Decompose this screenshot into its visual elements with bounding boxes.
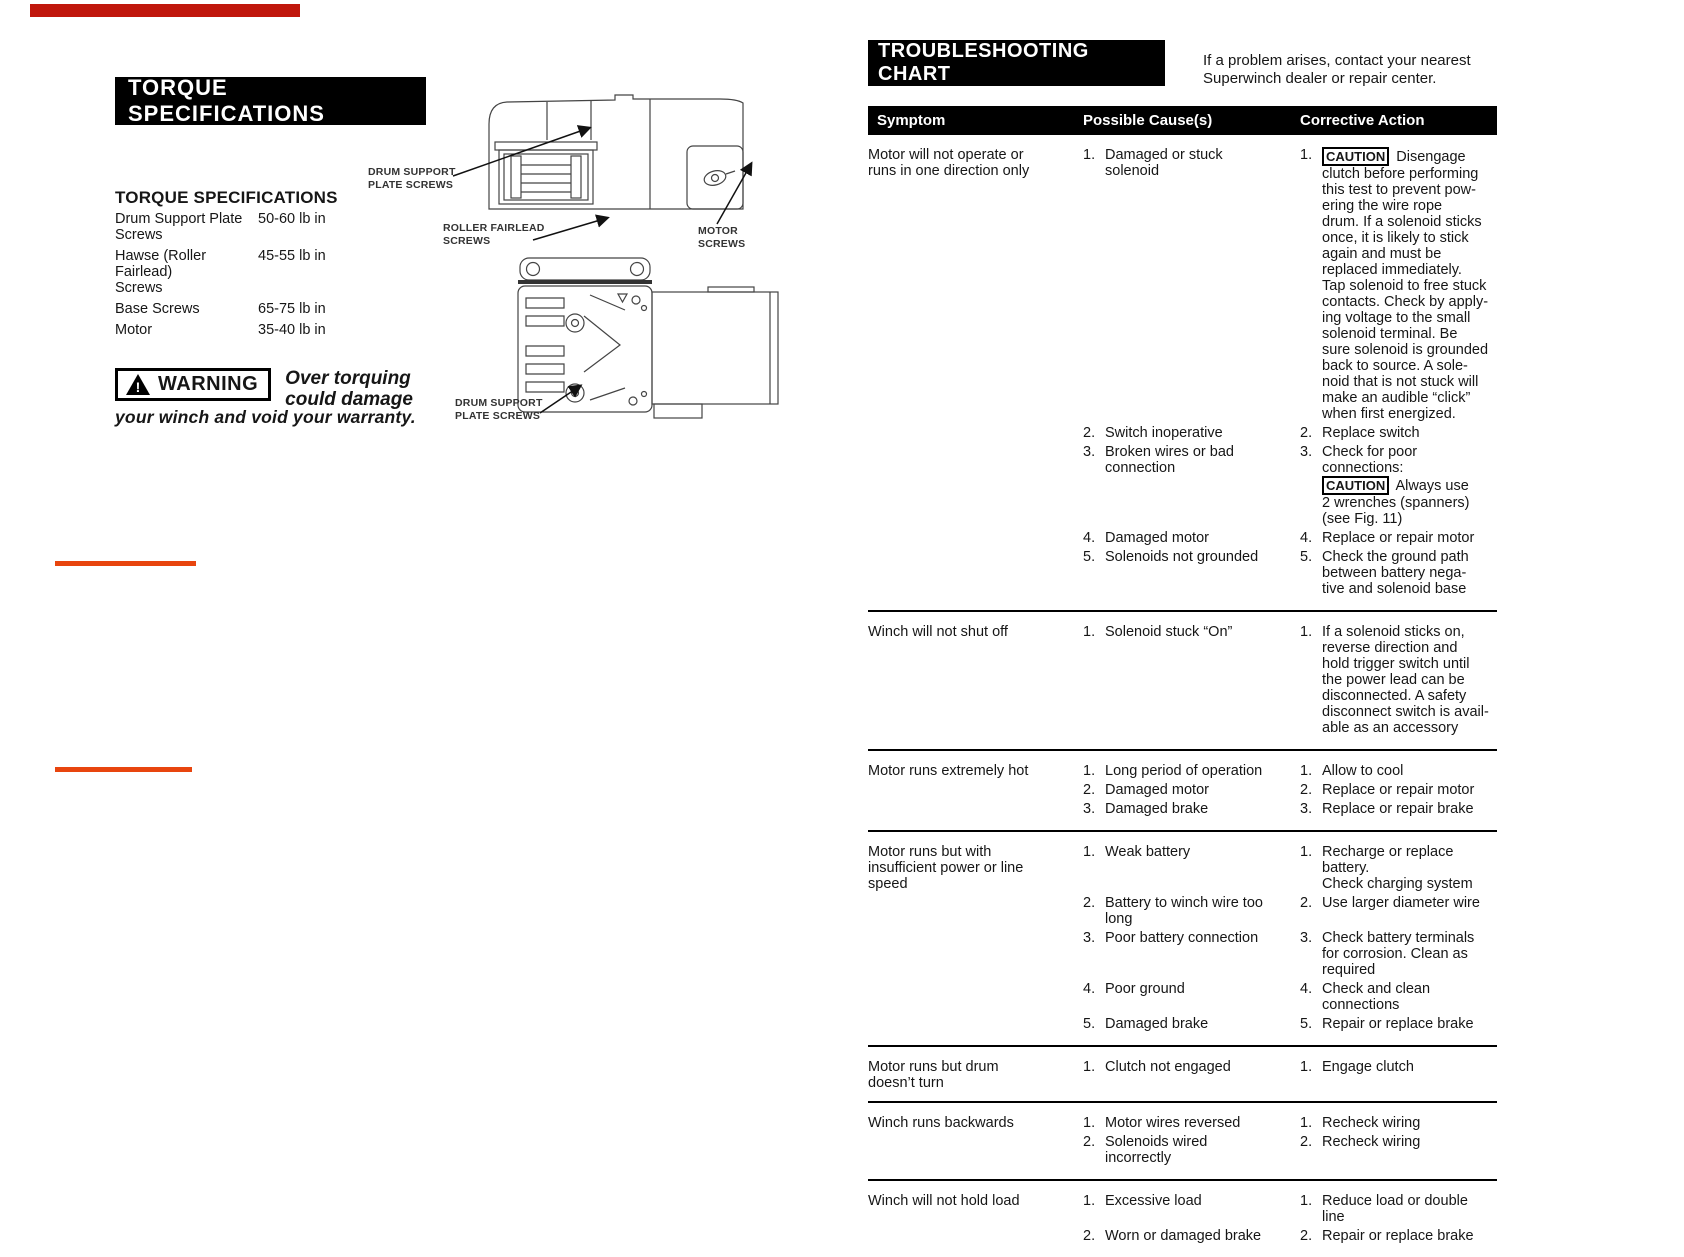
table-row: Motor runs but drum doesn’t turn1.Clutch… <box>868 1047 1497 1103</box>
warning-block: ! WARNING Over torquing could damage <box>115 368 413 410</box>
item-text: Check and clean connections <box>1322 981 1430 1013</box>
cause-action-pair: 2.Solenoids wired incorrectly2.Recheck w… <box>1083 1134 1497 1166</box>
action-item: 2.Replace switch <box>1300 425 1497 441</box>
roller-fairlead-screws-label: ROLLER FAIRLEAD SCREWS <box>443 222 545 247</box>
item-number: 4. <box>1300 530 1322 546</box>
item-text: Broken wires or bad connection <box>1105 444 1234 476</box>
spec-item-value: 35-40 lb in <box>258 322 330 338</box>
item-number: 2. <box>1300 895 1322 911</box>
item-number: 3. <box>1083 444 1105 460</box>
spec-item-label: Drum Support Plate Screws <box>115 211 258 243</box>
drum-support-plate-screws-label-top: DRUM SUPPORT PLATE SCREWS <box>368 166 456 191</box>
table-header-row: SymptomPossible Cause(s)Corrective Actio… <box>868 106 1497 135</box>
symptom-cell: Winch will not shut off <box>868 624 1083 739</box>
item-text: Check for poor connections: CAUTION Alwa… <box>1322 444 1497 527</box>
item-number: 1. <box>1083 624 1105 640</box>
cause-item: 1.Clutch not engaged <box>1083 1059 1300 1075</box>
item-text: Clutch not engaged <box>1105 1059 1231 1075</box>
item-number: 2. <box>1083 425 1105 441</box>
item-text: Reduce load or double line <box>1322 1193 1468 1225</box>
cause-item: 2.Switch inoperative <box>1083 425 1300 441</box>
spec-item-value: 65-75 lb in <box>258 301 330 317</box>
item-number: 2. <box>1300 782 1322 798</box>
table-row: Motor will not operate or runs in one di… <box>868 135 1497 612</box>
red-rule-1 <box>55 561 196 566</box>
cause-item: 5.Solenoids not grounded <box>1083 549 1300 597</box>
cause-item: 1.Excessive load <box>1083 1193 1300 1225</box>
item-number: 1. <box>1300 1193 1322 1209</box>
item-number: 1. <box>1300 1059 1322 1075</box>
item-text: Engage clutch <box>1322 1059 1414 1075</box>
item-text: Check the ground path between battery ne… <box>1322 549 1469 597</box>
svg-text:!: ! <box>136 379 141 395</box>
item-text: Check battery terminals for corrosion. C… <box>1322 930 1474 978</box>
item-text: Replace or repair motor <box>1322 782 1474 798</box>
item-text: Use larger diameter wire <box>1322 895 1480 911</box>
column-header: Possible Cause(s) <box>1083 113 1300 129</box>
cause-action-pair: 2.Switch inoperative2.Replace switch <box>1083 425 1497 441</box>
item-number: 1. <box>1300 1115 1322 1131</box>
item-number: 1. <box>1300 624 1322 640</box>
cause-action-list: 1.Weak battery1.Recharge or replace batt… <box>1083 844 1497 1035</box>
red-top-bar <box>30 4 300 17</box>
cause-action-pair: 3.Broken wires or bad connection3.Check … <box>1083 444 1497 527</box>
column-header: Corrective Action <box>1300 113 1497 129</box>
cause-action-list: 1.Damaged or stuck solenoid1.CAUTION Dis… <box>1083 147 1497 600</box>
item-text: Battery to winch wire too long <box>1105 895 1263 927</box>
item-number: 5. <box>1083 549 1105 565</box>
symptom-cell: Motor will not operate or runs in one di… <box>868 147 1083 600</box>
spec-row: Hawse (Roller Fairlead) Screws45-55 lb i… <box>115 248 330 296</box>
action-item: 2.Repair or replace brake <box>1300 1228 1497 1244</box>
item-number: 1. <box>1300 844 1322 860</box>
item-text: Excessive load <box>1105 1193 1202 1209</box>
item-number: 1. <box>1083 147 1105 163</box>
cause-action-list: 1.Clutch not engaged1.Engage clutch <box>1083 1059 1497 1091</box>
warning-box: ! WARNING <box>115 368 271 401</box>
cause-action-pair: 1.Solenoid stuck “On”1.If a solenoid sti… <box>1083 624 1497 736</box>
item-number: 1. <box>1300 763 1322 779</box>
action-item: 4.Check and clean connections <box>1300 981 1497 1013</box>
cause-item: 2.Damaged motor <box>1083 782 1300 798</box>
cause-item: 1.Weak battery <box>1083 844 1300 892</box>
item-number: 3. <box>1083 801 1105 817</box>
item-text: Repair or replace brake <box>1322 1016 1474 1032</box>
item-number: 5. <box>1300 1016 1322 1032</box>
action-item: 3.Replace or repair brake <box>1300 801 1497 817</box>
item-number: 1. <box>1083 763 1105 779</box>
item-number: 4. <box>1300 981 1322 997</box>
action-item: 5.Check the ground path between battery … <box>1300 549 1497 597</box>
item-text: Solenoid stuck “On” <box>1105 624 1232 640</box>
spec-item-label: Hawse (Roller Fairlead) Screws <box>115 248 258 296</box>
action-item: 1.If a solenoid sticks on, reverse direc… <box>1300 624 1497 736</box>
item-number: 2. <box>1083 1228 1105 1244</box>
symptom-cell: Motor runs but drum doesn’t turn <box>868 1059 1083 1091</box>
item-text: Recheck wiring <box>1322 1134 1420 1150</box>
item-text: Poor ground <box>1105 981 1185 997</box>
action-item: 1.Reduce load or double line <box>1300 1193 1497 1225</box>
cause-item: 5.Damaged brake <box>1083 1016 1300 1032</box>
cause-item: 1.Solenoid stuck “On” <box>1083 624 1300 736</box>
cause-action-list: 1.Solenoid stuck “On”1.If a solenoid sti… <box>1083 624 1497 739</box>
item-text: Damaged brake <box>1105 1016 1208 1032</box>
drum-support-plate-screws-label-bottom: DRUM SUPPORT PLATE SCREWS <box>455 397 543 422</box>
cause-action-pair: 1.Excessive load1.Reduce load or double … <box>1083 1193 1497 1225</box>
cause-action-pair: 2.Worn or damaged brake2.Repair or repla… <box>1083 1228 1497 1244</box>
cause-item: 3.Damaged brake <box>1083 801 1300 817</box>
item-text: Solenoids wired incorrectly <box>1105 1134 1207 1166</box>
action-item: 2.Use larger diameter wire <box>1300 895 1497 927</box>
item-number: 3. <box>1083 930 1105 946</box>
cause-action-pair: 3.Poor battery connection3.Check battery… <box>1083 930 1497 978</box>
item-text: Recheck wiring <box>1322 1115 1420 1131</box>
troubleshooting-table: SymptomPossible Cause(s)Corrective Actio… <box>868 106 1497 1257</box>
item-text: Damaged motor <box>1105 782 1209 798</box>
cause-item: 1.Long period of operation <box>1083 763 1300 779</box>
item-number: 2. <box>1300 1228 1322 1244</box>
warning-triangle-icon: ! <box>125 373 151 396</box>
item-number: 3. <box>1300 801 1322 817</box>
item-text: Solenoids not grounded <box>1105 549 1258 565</box>
action-item: 2.Replace or repair motor <box>1300 782 1497 798</box>
cause-item: 1.Damaged or stuck solenoid <box>1083 147 1300 422</box>
item-number: 3. <box>1300 930 1322 946</box>
caution-badge: CAUTION <box>1322 476 1389 495</box>
cause-action-pair: 4.Poor ground4.Check and clean connectio… <box>1083 981 1497 1013</box>
spec-item-label: Motor <box>115 322 258 338</box>
cause-item: 2.Battery to winch wire too long <box>1083 895 1300 927</box>
item-text: Long period of operation <box>1105 763 1262 779</box>
item-number: 1. <box>1083 1115 1105 1131</box>
item-number: 4. <box>1083 530 1105 546</box>
cause-action-pair: 3.Damaged brake3.Replace or repair brake <box>1083 801 1497 817</box>
item-number: 1. <box>1300 147 1322 163</box>
cause-action-pair: 1.Weak battery1.Recharge or replace batt… <box>1083 844 1497 892</box>
symptom-cell: Winch runs backwards <box>868 1115 1083 1169</box>
cause-action-pair: 2.Damaged motor2.Replace or repair motor <box>1083 782 1497 798</box>
item-number: 1. <box>1083 1059 1105 1075</box>
item-number: 3. <box>1300 444 1322 460</box>
item-text: Replace switch <box>1322 425 1420 441</box>
action-item: 1.Recheck wiring <box>1300 1115 1497 1131</box>
cause-item: 3.Poor battery connection <box>1083 930 1300 978</box>
item-number: 1. <box>1083 844 1105 860</box>
winch-end-view-diagram: DRUM SUPPORT PLATE SCREWS <box>440 250 785 440</box>
item-text: Motor wires reversed <box>1105 1115 1240 1131</box>
cause-action-pair: 1.Damaged or stuck solenoid1.CAUTION Dis… <box>1083 147 1497 422</box>
cause-item: 3.Broken wires or bad connection <box>1083 444 1300 527</box>
dealer-note: If a problem arises, contact your neares… <box>1203 52 1503 87</box>
item-number: 5. <box>1083 1016 1105 1032</box>
table-row: Winch will not hold load1.Excessive load… <box>868 1181 1497 1257</box>
item-text: Recharge or replace battery. Check charg… <box>1322 844 1497 892</box>
action-item: 3.Check battery terminals for corrosion.… <box>1300 930 1497 978</box>
cause-item: 4.Damaged motor <box>1083 530 1300 546</box>
item-number: 4. <box>1083 981 1105 997</box>
cause-action-pair: 1.Clutch not engaged1.Engage clutch <box>1083 1059 1497 1075</box>
cause-action-pair: 4.Damaged motor4.Replace or repair motor <box>1083 530 1497 546</box>
motor-screws-label: MOTOR SCREWS <box>698 225 745 250</box>
cause-action-list: 1.Excessive load1.Reduce load or double … <box>1083 1193 1497 1247</box>
column-header: Symptom <box>868 113 1083 129</box>
item-text: Repair or replace brake <box>1322 1228 1474 1244</box>
winch-side-view-diagram: DRUM SUPPORT PLATE SCREWS ROLLER FAIRLEA… <box>365 90 765 265</box>
symptom-cell: Motor runs extremely hot <box>868 763 1083 820</box>
item-number: 1. <box>1083 1193 1105 1209</box>
action-item: 3.Check for poor connections: CAUTION Al… <box>1300 444 1497 527</box>
table-row: Motor runs but with insufficient power o… <box>868 832 1497 1047</box>
action-item: 1.Allow to cool <box>1300 763 1497 779</box>
item-text: Poor battery connection <box>1105 930 1258 946</box>
item-number: 5. <box>1300 549 1322 565</box>
cause-action-pair: 1.Long period of operation1.Allow to coo… <box>1083 763 1497 779</box>
table-row: Winch runs backwards1.Motor wires revers… <box>868 1103 1497 1181</box>
action-item: 2.Recheck wiring <box>1300 1134 1497 1166</box>
item-text: CAUTION Disengage clutch before performi… <box>1322 147 1488 422</box>
cause-item: 2.Worn or damaged brake <box>1083 1228 1300 1244</box>
manual-page: { "decor": { "top_bar_color": "#c0170c",… <box>0 0 1684 1191</box>
symptom-cell: Motor runs but with insufficient power o… <box>868 844 1083 1035</box>
spec-row: Drum Support Plate Screws50-60 lb in <box>115 211 330 243</box>
cause-action-list: 1.Motor wires reversed1.Recheck wiring2.… <box>1083 1115 1497 1169</box>
spec-row: Base Screws65-75 lb in <box>115 301 330 317</box>
warning-tail-text: your winch and void your warranty. <box>115 407 416 428</box>
symptom-cell: Winch will not hold load <box>868 1193 1083 1247</box>
item-number: 2. <box>1300 1134 1322 1150</box>
item-text: Replace or repair brake <box>1322 801 1474 817</box>
torque-spec-list: Drum Support Plate Screws50-60 lb inHaws… <box>115 211 330 343</box>
item-number: 2. <box>1083 895 1105 911</box>
item-text: If a solenoid sticks on, reverse directi… <box>1322 624 1489 736</box>
warning-label: WARNING <box>158 373 258 396</box>
item-text: Switch inoperative <box>1105 425 1223 441</box>
warning-emphasis-text: Over torquing could damage <box>285 368 413 410</box>
item-text: Replace or repair motor <box>1322 530 1474 546</box>
red-rule-2 <box>55 767 192 772</box>
troubleshooting-chart-banner: TROUBLESHOOTING CHART <box>868 40 1165 86</box>
action-item: 1.CAUTION Disengage clutch before perfor… <box>1300 147 1497 422</box>
table-body: Motor will not operate or runs in one di… <box>868 135 1497 1257</box>
action-item: 4.Replace or repair motor <box>1300 530 1497 546</box>
item-number: 2. <box>1083 1134 1105 1150</box>
cause-action-list: 1.Long period of operation1.Allow to coo… <box>1083 763 1497 820</box>
action-item: 1.Engage clutch <box>1300 1059 1497 1075</box>
cause-action-pair: 2.Battery to winch wire too long2.Use la… <box>1083 895 1497 927</box>
table-row: Motor runs extremely hot1.Long period of… <box>868 751 1497 832</box>
table-row: Winch will not shut off1.Solenoid stuck … <box>868 612 1497 751</box>
item-text: Damaged or stuck solenoid <box>1105 147 1223 179</box>
cause-item: 4.Poor ground <box>1083 981 1300 1013</box>
item-text: Damaged motor <box>1105 530 1209 546</box>
item-number: 2. <box>1083 782 1105 798</box>
item-text: Weak battery <box>1105 844 1190 860</box>
spec-item-value: 50-60 lb in <box>258 211 330 243</box>
item-text: Allow to cool <box>1322 763 1403 779</box>
cause-action-pair: 1.Motor wires reversed1.Recheck wiring <box>1083 1115 1497 1131</box>
action-item: 1.Recharge or replace battery. Check cha… <box>1300 844 1497 892</box>
cause-item: 2.Solenoids wired incorrectly <box>1083 1134 1300 1166</box>
item-text: Worn or damaged brake <box>1105 1228 1261 1244</box>
action-item: 5.Repair or replace brake <box>1300 1016 1497 1032</box>
spec-item-label: Base Screws <box>115 301 258 317</box>
spec-item-value: 45-55 lb in <box>258 248 330 296</box>
cause-item: 1.Motor wires reversed <box>1083 1115 1300 1131</box>
spec-row: Motor35-40 lb in <box>115 322 330 338</box>
cause-action-pair: 5.Solenoids not grounded5.Check the grou… <box>1083 549 1497 597</box>
torque-specifications-heading: TORQUE SPECIFICATIONS <box>115 188 338 208</box>
item-number: 2. <box>1300 425 1322 441</box>
item-text: Damaged brake <box>1105 801 1208 817</box>
cause-action-pair: 5.Damaged brake5.Repair or replace brake <box>1083 1016 1497 1032</box>
caution-badge: CAUTION <box>1322 147 1389 166</box>
